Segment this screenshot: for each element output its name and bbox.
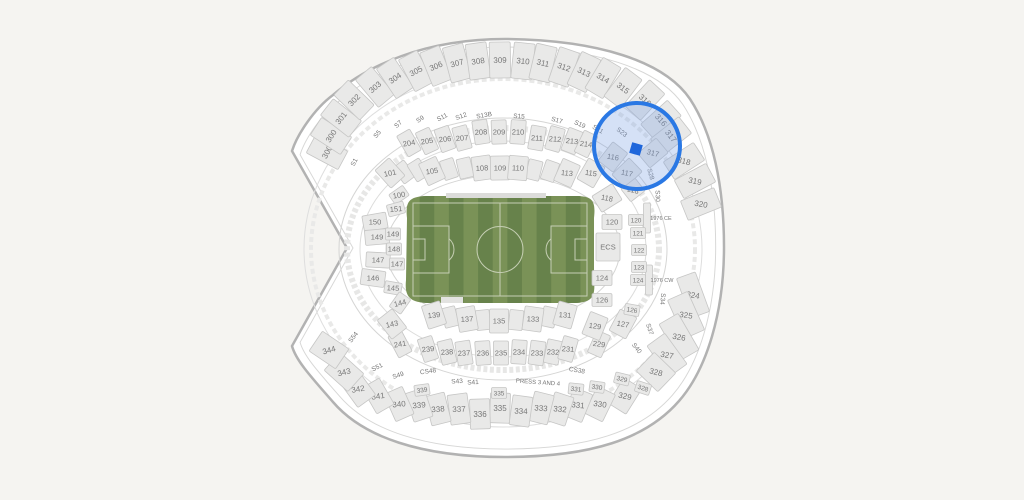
section-label-334: 334 — [514, 407, 528, 416]
section-label-338: 338 — [431, 404, 445, 414]
mow-stripe — [420, 192, 435, 308]
section-label-339: 339 — [412, 400, 427, 410]
section-label-145: 145 — [387, 283, 400, 293]
svg-text:124: 124 — [633, 277, 644, 284]
section-label-206: 206 — [438, 134, 451, 144]
section-label-122: 122 — [634, 247, 645, 254]
section-label-331: 331 — [570, 386, 582, 394]
section-label-335: 335 — [493, 404, 507, 413]
section-label-213: 213 — [565, 136, 578, 146]
svg-text:121: 121 — [633, 230, 644, 237]
svg-text:123: 123 — [634, 264, 645, 271]
svg-text:338: 338 — [431, 404, 445, 414]
section-label-234: 234 — [513, 348, 526, 357]
section-label-309: 309 — [493, 56, 507, 65]
svg-text:330: 330 — [593, 399, 608, 410]
playing-field — [406, 192, 595, 308]
section-label-110: 110 — [512, 163, 524, 172]
svg-text:133: 133 — [527, 314, 540, 324]
svg-text:145: 145 — [387, 283, 400, 293]
svg-text:212: 212 — [548, 134, 561, 144]
section-label-s41: S41 — [467, 379, 479, 387]
section-label-335: 335 — [494, 390, 505, 397]
section-label-129: 129 — [588, 321, 602, 332]
section-label-147: 147 — [372, 256, 385, 265]
svg-text:115: 115 — [584, 168, 597, 179]
section-label-ecs: ECS — [600, 243, 615, 252]
svg-text:1976 CE: 1976 CE — [650, 216, 672, 222]
svg-text:146: 146 — [367, 274, 380, 283]
section-label-s30: S30 — [654, 190, 661, 202]
section-label-131: 131 — [558, 310, 571, 320]
section-label-233: 233 — [531, 348, 544, 357]
svg-text:210: 210 — [512, 128, 525, 137]
mow-stripe — [507, 192, 522, 308]
svg-text:211: 211 — [531, 133, 543, 143]
section-label-135: 135 — [493, 317, 506, 326]
section-label-126: 126 — [596, 296, 609, 305]
svg-text:S30: S30 — [654, 190, 661, 202]
svg-text:139: 139 — [427, 310, 440, 320]
section-label-207: 207 — [455, 133, 468, 143]
svg-text:131: 131 — [558, 310, 571, 320]
svg-text:234: 234 — [513, 348, 526, 357]
section-label-124: 124 — [633, 277, 644, 284]
svg-text:148: 148 — [388, 245, 401, 254]
svg-text:126: 126 — [596, 296, 609, 305]
section-label-149: 149 — [371, 233, 384, 242]
svg-text:208: 208 — [475, 127, 488, 137]
section-label-120: 120 — [606, 218, 619, 227]
svg-text:120: 120 — [606, 218, 619, 227]
svg-text:149: 149 — [387, 230, 400, 239]
svg-text:109: 109 — [494, 164, 507, 173]
section-label-133: 133 — [527, 314, 540, 324]
section-label-235: 235 — [495, 349, 508, 358]
svg-text:232: 232 — [547, 347, 560, 357]
section-label-212: 212 — [548, 134, 561, 144]
section-label-1976-cw: 1976 CW — [651, 278, 675, 284]
svg-text:124: 124 — [596, 274, 609, 283]
mow-stripe — [478, 192, 493, 308]
section-label-108: 108 — [476, 163, 489, 173]
svg-text:120: 120 — [631, 217, 642, 224]
stadium-seat-map: 3003003013023033043053063073083093103113… — [0, 0, 1024, 500]
svg-text:308: 308 — [471, 56, 486, 67]
section-label-336: 336 — [473, 410, 487, 419]
svg-text:150: 150 — [369, 218, 382, 227]
svg-text:ECS: ECS — [600, 243, 615, 252]
section-label-123: 123 — [634, 264, 645, 271]
svg-text:147: 147 — [372, 256, 385, 265]
section-label-308: 308 — [471, 56, 486, 67]
svg-text:151: 151 — [389, 204, 402, 214]
svg-text:238: 238 — [440, 347, 453, 357]
svg-text:S41: S41 — [467, 379, 479, 387]
section-label-s34: S34 — [658, 293, 666, 306]
field-tunnel — [441, 297, 463, 303]
svg-text:310: 310 — [516, 56, 531, 66]
field-tunnel — [446, 193, 546, 198]
section-label-208: 208 — [475, 127, 488, 137]
svg-text:149: 149 — [371, 233, 384, 242]
section-label-137: 137 — [461, 314, 474, 324]
seat-map-page: 3003003013023033043053063073083093103113… — [0, 0, 1024, 500]
svg-text:137: 137 — [461, 314, 474, 324]
svg-text:233: 233 — [531, 348, 544, 357]
svg-text:108: 108 — [476, 163, 489, 173]
svg-text:335: 335 — [493, 404, 507, 413]
svg-text:S15: S15 — [513, 113, 525, 121]
svg-text:237: 237 — [458, 348, 471, 358]
section-label-s15: S15 — [513, 113, 525, 121]
svg-text:333: 333 — [534, 403, 548, 413]
section-label-109: 109 — [494, 164, 507, 173]
section-label-310: 310 — [516, 56, 531, 66]
section-label-214: 214 — [579, 139, 593, 150]
svg-text:339: 339 — [412, 400, 427, 410]
section-label-s43: S43 — [451, 378, 463, 386]
section-label-1976-ce: 1976 CE — [650, 216, 672, 222]
section-label-148: 148 — [388, 245, 401, 254]
svg-text:331: 331 — [570, 386, 582, 394]
mow-stripe — [537, 192, 552, 308]
section-label-151: 151 — [389, 204, 402, 214]
section-label-210: 210 — [512, 128, 525, 137]
section-label-105: 105 — [425, 166, 439, 177]
svg-text:206: 206 — [438, 134, 451, 144]
section-label-150: 150 — [369, 218, 382, 227]
section-label-231: 231 — [561, 344, 574, 354]
svg-text:335: 335 — [494, 390, 505, 397]
section-label-121: 121 — [633, 230, 644, 237]
mow-stripe — [566, 192, 581, 308]
svg-text:129: 129 — [588, 321, 602, 332]
section-label-330: 330 — [593, 399, 608, 410]
svg-text:S43: S43 — [451, 378, 463, 386]
svg-text:214: 214 — [579, 139, 593, 150]
svg-text:334: 334 — [514, 407, 528, 416]
svg-text:336: 336 — [473, 410, 487, 419]
svg-text:231: 231 — [561, 344, 574, 354]
svg-text:239: 239 — [421, 344, 434, 354]
section-label-333: 333 — [534, 403, 548, 413]
section-label-139: 139 — [427, 310, 440, 320]
section-label-115: 115 — [584, 168, 597, 179]
section-unlabeled[interactable] — [508, 309, 524, 330]
section-label-337: 337 — [452, 405, 466, 414]
section-label-147: 147 — [391, 260, 404, 269]
section-label-232: 232 — [547, 347, 560, 357]
section-label-332: 332 — [553, 404, 568, 414]
svg-text:213: 213 — [565, 136, 578, 146]
svg-text:207: 207 — [455, 133, 468, 143]
svg-text:105: 105 — [425, 166, 439, 177]
stadium-root: 3003003013023033043053063073083093103113… — [292, 39, 724, 457]
svg-text:S34: S34 — [658, 293, 666, 306]
section-label-236: 236 — [477, 349, 490, 358]
section-label-149: 149 — [387, 230, 400, 239]
svg-text:337: 337 — [452, 405, 466, 414]
svg-text:113: 113 — [561, 168, 574, 178]
section-label-211: 211 — [531, 133, 543, 143]
svg-text:110: 110 — [512, 163, 524, 172]
section-label-146: 146 — [367, 274, 380, 283]
svg-text:209: 209 — [493, 128, 506, 137]
svg-text:205: 205 — [420, 136, 434, 147]
section-label-205: 205 — [420, 136, 434, 147]
section-label-237: 237 — [458, 348, 471, 358]
section-label-124: 124 — [596, 274, 609, 283]
svg-text:122: 122 — [634, 247, 645, 254]
section-label-209: 209 — [493, 128, 506, 137]
mow-stripe — [449, 192, 464, 308]
svg-text:340: 340 — [392, 399, 407, 409]
svg-text:332: 332 — [553, 404, 568, 414]
section-label-238: 238 — [440, 347, 453, 357]
svg-text:1976 CW: 1976 CW — [651, 278, 675, 284]
section-label-340: 340 — [392, 399, 407, 409]
svg-text:147: 147 — [391, 260, 404, 269]
section-label-120: 120 — [631, 217, 642, 224]
section-label-113: 113 — [561, 168, 574, 178]
section-label-239: 239 — [421, 344, 434, 354]
svg-text:236: 236 — [477, 349, 490, 358]
svg-text:309: 309 — [493, 56, 507, 65]
svg-text:135: 135 — [493, 317, 506, 326]
svg-text:235: 235 — [495, 349, 508, 358]
